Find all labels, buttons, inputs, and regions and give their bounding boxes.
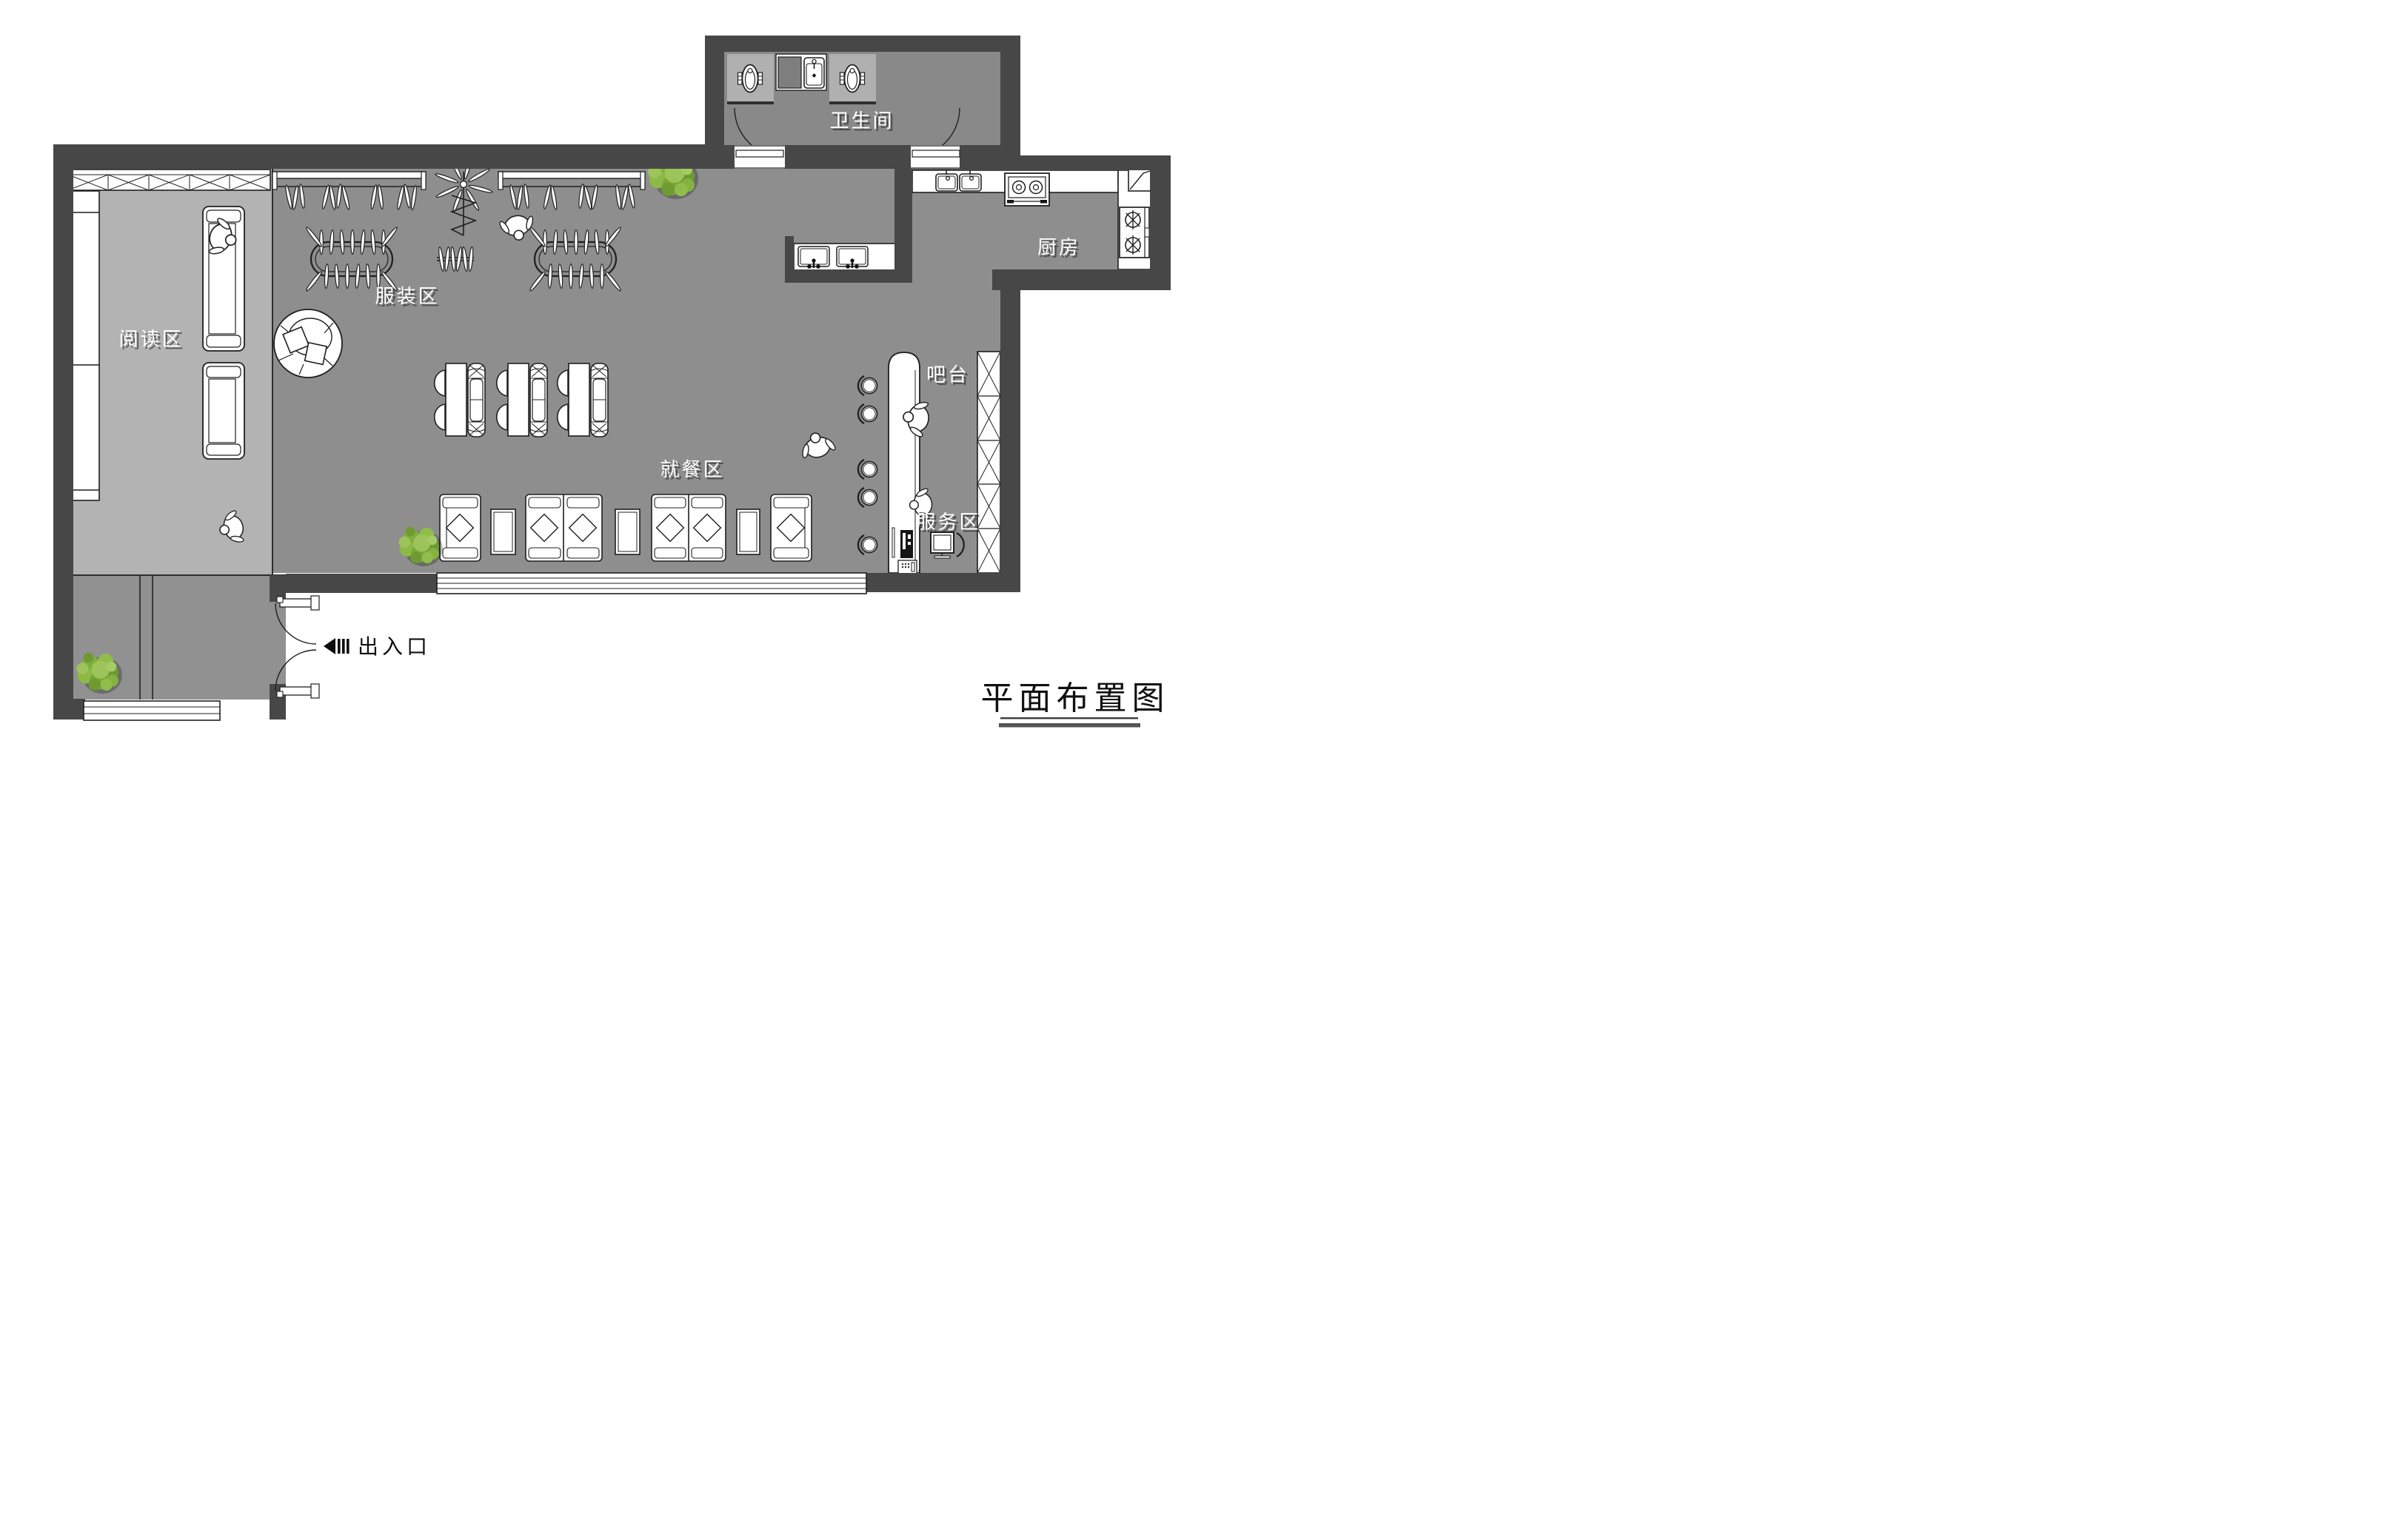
- dining-table: [446, 363, 466, 436]
- window: [84, 701, 220, 720]
- bathroom-label: 卫生间: [829, 110, 894, 133]
- bathroom-counter: [776, 54, 826, 90]
- floor-plan: 出入口 卫生间 卫生间 厨房 厨房 阅读区 阅读区 服装区 服装区 就餐区 就餐…: [0, 0, 1204, 758]
- page-title: 平面布置图: [981, 680, 1170, 717]
- floor-plan-canvas: 出入口 卫生间 卫生间 厨房 厨房 阅读区 阅读区 服装区 服装区 就餐区 就餐…: [0, 0, 1204, 758]
- washbasin: [804, 58, 824, 88]
- title-block: 平面布置图: [981, 680, 1170, 728]
- wash-basin-counter: [794, 244, 898, 270]
- corner-cabinet: [1128, 170, 1151, 191]
- title-underline-thick: [999, 723, 1140, 728]
- lounge-sofa-double: [526, 494, 602, 561]
- door-leaf: [912, 150, 960, 157]
- lounge-sofa-double: [652, 494, 726, 561]
- entrance-label: 出入口: [358, 634, 431, 659]
- lounge-sofa: [771, 494, 812, 561]
- bar-stool: [858, 535, 877, 554]
- gas-range: [1120, 207, 1149, 258]
- service-label: 服务区: [916, 512, 980, 534]
- top-display-shelf: [68, 170, 270, 190]
- booth-sofa: [468, 363, 485, 437]
- reading-label: 阅读区: [118, 329, 183, 351]
- lounge-sofa: [440, 494, 481, 561]
- display-shelf: [977, 352, 1000, 573]
- bar-stool: [858, 376, 877, 395]
- window: [437, 573, 866, 594]
- bar-stool: [858, 488, 877, 507]
- counter-appliance: [778, 57, 801, 88]
- round-lounge-chair: [274, 309, 342, 378]
- kitchen-label: 厨房: [1037, 237, 1080, 259]
- monitor-stand: [934, 556, 950, 558]
- bar-label: 吧台: [926, 364, 969, 386]
- telephone: [898, 560, 920, 574]
- menu-board: [892, 528, 894, 557]
- clothing-label: 服装区: [375, 286, 439, 308]
- door-leaf: [736, 150, 783, 157]
- cash-register: [900, 530, 913, 558]
- stove: [1005, 173, 1049, 206]
- bar-stool: [858, 404, 877, 423]
- bar-stool: [858, 460, 877, 479]
- entrance: 出入口: [275, 596, 431, 698]
- dining-label: 就餐区: [660, 459, 724, 481]
- entrance-arrow-icon: [324, 638, 350, 654]
- reading-sofa: [203, 363, 244, 459]
- title-underline-thin: [1000, 717, 1138, 719]
